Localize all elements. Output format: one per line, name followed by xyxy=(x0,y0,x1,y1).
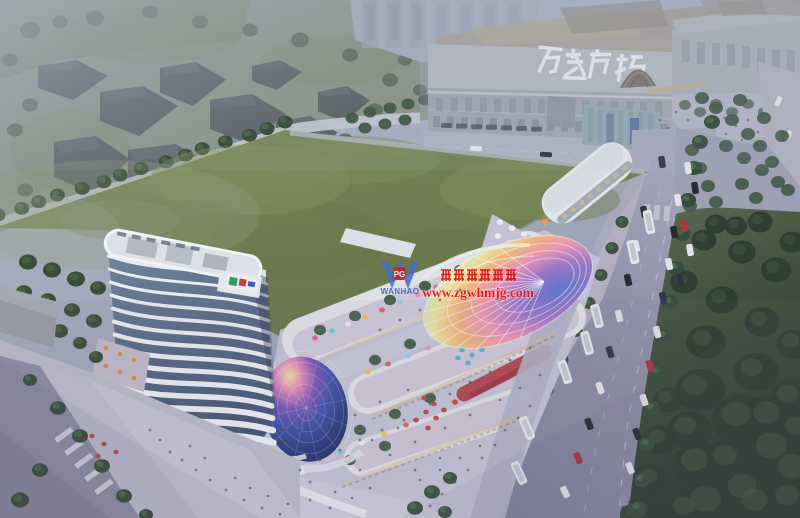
svg-text:WANHAO: WANHAO xyxy=(381,287,420,296)
svg-text:PG: PG xyxy=(394,270,406,279)
svg-text:www.zgwhmjg.com: www.zgwhmjg.com xyxy=(422,285,534,300)
